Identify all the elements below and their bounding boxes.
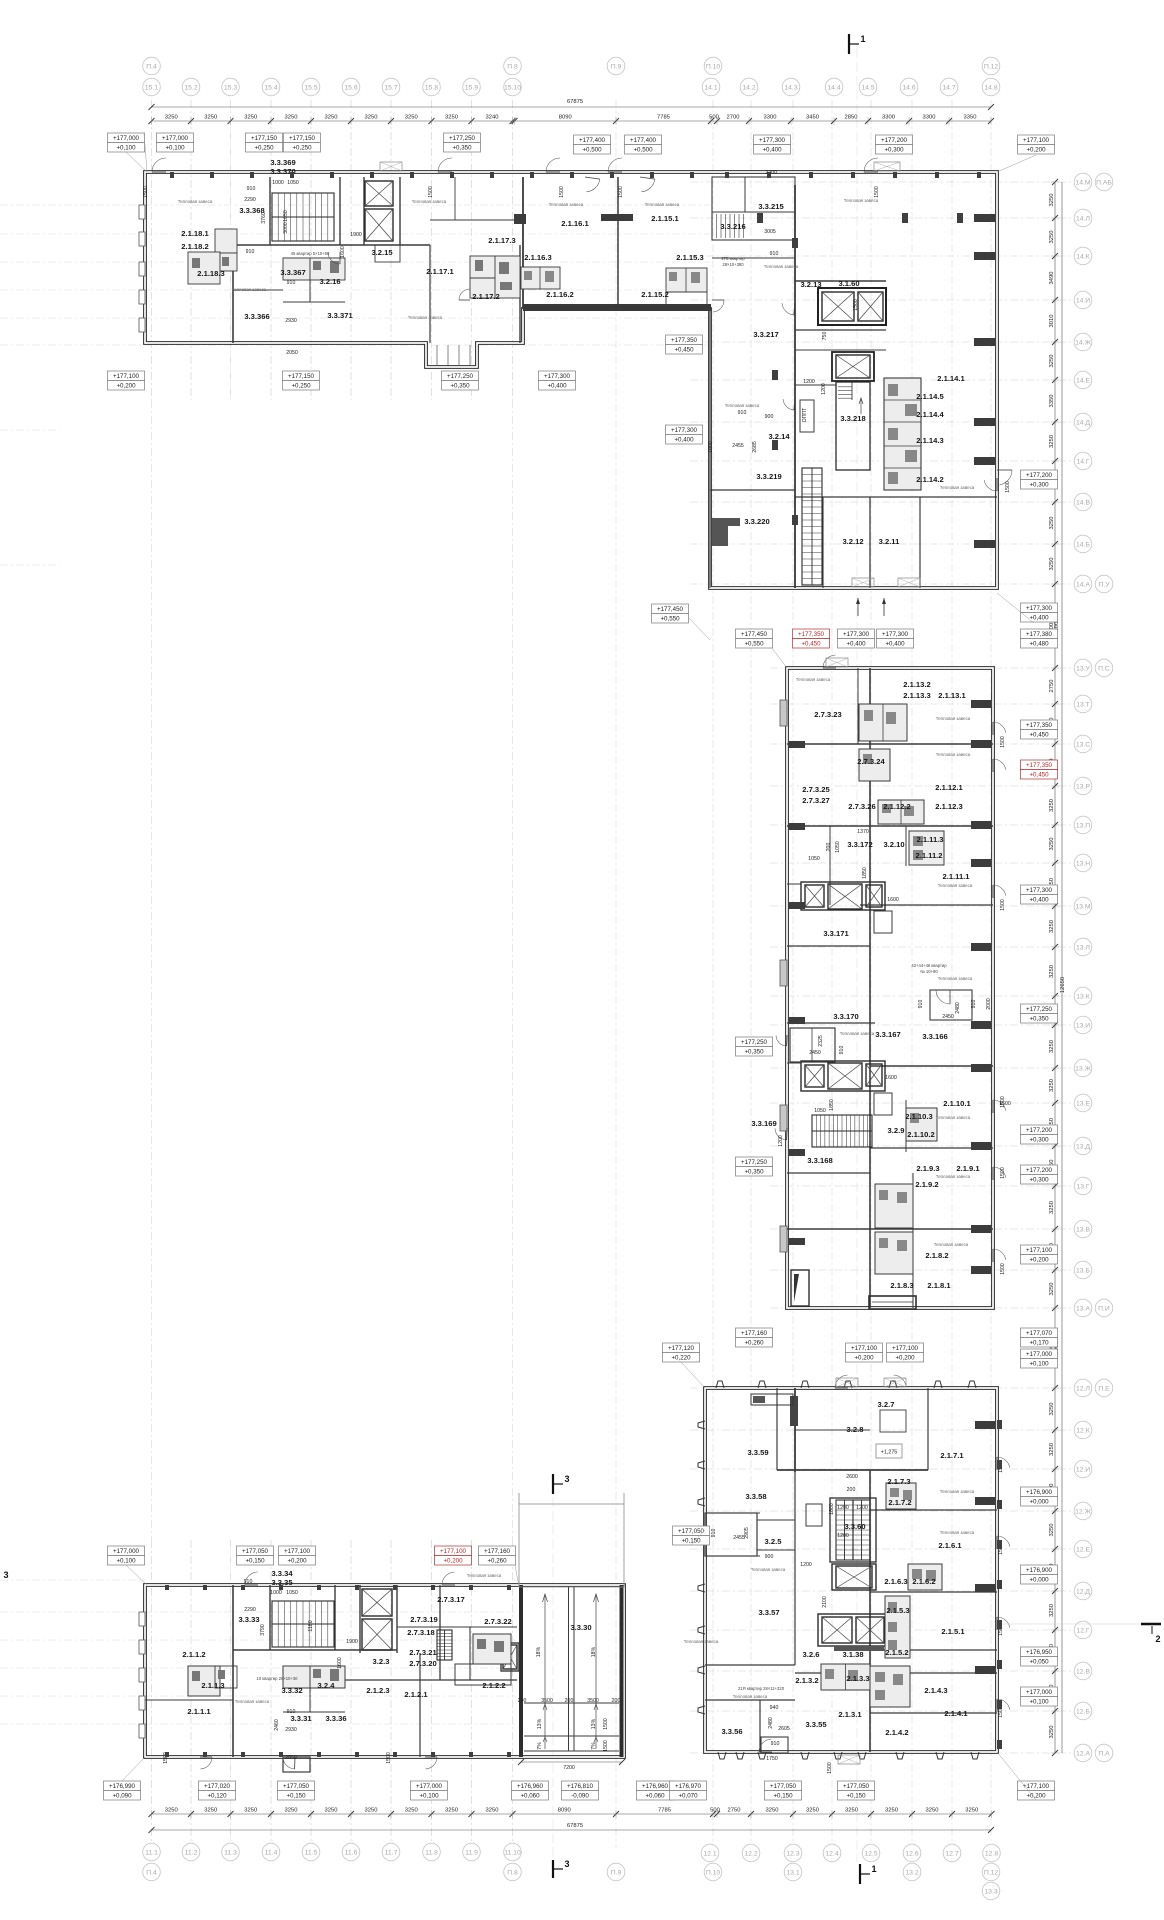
svg-text:+177,350: +177,350 (1026, 722, 1053, 729)
svg-text:13.3: 13.3 (984, 1888, 997, 1895)
svg-text:1500: 1500 (428, 186, 434, 198)
svg-text:3250: 3250 (885, 1808, 898, 1814)
svg-text:Тепловая завеса: Тепловая завеса (733, 1694, 768, 1699)
svg-text:14.6: 14.6 (902, 84, 915, 91)
svg-text:1500: 1500 (618, 186, 624, 198)
svg-text:+176,960: +176,960 (517, 1783, 544, 1790)
svg-text:3250: 3250 (486, 1808, 499, 1814)
svg-text:+0,060: +0,060 (520, 1793, 540, 1800)
svg-text:3250: 3250 (1049, 1283, 1055, 1296)
svg-text:П.10: П.10 (706, 1869, 721, 1876)
svg-text:+177,200: +177,200 (1026, 472, 1053, 479)
svg-text:3010: 3010 (1049, 315, 1055, 328)
svg-text:1600: 1600 (337, 1657, 343, 1669)
svg-text:+0,000: +0,000 (1029, 1577, 1049, 1584)
svg-text:Тепловая завеса: Тепловая завеса (764, 264, 799, 269)
svg-text:3250: 3250 (1049, 231, 1055, 244)
svg-text:13.Е: 13.Е (1076, 1100, 1090, 1107)
svg-text:15.4: 15.4 (264, 84, 277, 91)
svg-text:+0,100: +0,100 (116, 145, 136, 152)
svg-text:3500: 3500 (587, 1698, 599, 1704)
svg-text:1: 1 (860, 34, 865, 44)
svg-text:+0,200: +0,200 (116, 383, 136, 390)
svg-text:15.7: 15.7 (384, 84, 397, 91)
svg-text:2.7.3.19: 2.7.3.19 (410, 1615, 437, 1624)
svg-text:Тепловая завеса: Тепловая завеса (940, 485, 975, 490)
svg-text:2.1.14.3: 2.1.14.3 (916, 436, 943, 445)
svg-text:1500: 1500 (603, 1718, 609, 1730)
svg-text:П.4: П.4 (146, 63, 157, 70)
svg-text:14.3: 14.3 (784, 84, 797, 91)
svg-text:1800: 1800 (708, 441, 714, 453)
svg-text:13.Р: 13.Р (1076, 783, 1090, 790)
svg-text:940: 940 (770, 1705, 779, 1711)
svg-text:Тепловая завеса: Тепловая завеса (938, 883, 973, 888)
svg-text:+177,300: +177,300 (1026, 605, 1053, 612)
svg-text:+177,450: +177,450 (741, 631, 768, 638)
svg-text:+0,150: +0,150 (286, 1793, 306, 1800)
svg-text:11.4: 11.4 (265, 1849, 278, 1856)
svg-text:8090: 8090 (559, 115, 572, 121)
svg-text:Тепловая завеса: Тепловая завеса (684, 1639, 719, 1644)
svg-text:910: 910 (839, 1046, 845, 1055)
svg-text:3250: 3250 (806, 1808, 819, 1814)
svg-text:3250: 3250 (285, 1808, 298, 1814)
svg-text:2.1.8.3: 2.1.8.3 (890, 1281, 913, 1290)
svg-text:11.2: 11.2 (185, 1849, 198, 1856)
svg-text:-0,090: -0,090 (571, 1793, 589, 1800)
svg-text:14.А: 14.А (1076, 581, 1090, 588)
svg-text:2.7.3.27: 2.7.3.27 (802, 796, 829, 805)
svg-text:+0,400: +0,400 (1029, 615, 1049, 622)
svg-text:3.3.33: 3.3.33 (238, 1615, 259, 1624)
svg-text:3.2.4: 3.2.4 (318, 1681, 336, 1690)
svg-text:3250: 3250 (204, 115, 217, 121)
svg-text:3250: 3250 (1049, 1443, 1055, 1456)
svg-text:3005: 3005 (764, 229, 776, 235)
svg-text:+0,250: +0,250 (291, 383, 311, 390)
svg-text:2.1.15.3: 2.1.15.3 (676, 253, 703, 262)
svg-text:12.И: 12.И (1076, 1466, 1090, 1473)
svg-text:910: 910 (247, 186, 256, 192)
svg-text:12.А: 12.А (1076, 1750, 1090, 1757)
svg-text:2.1.9.1: 2.1.9.1 (956, 1164, 980, 1173)
svg-text:Тепловая завеса: Тепловая завеса (936, 716, 971, 721)
svg-text:12.Б: 12.Б (1076, 1708, 1090, 1715)
svg-text:+0,400: +0,400 (846, 641, 866, 648)
svg-text:12.3: 12.3 (786, 1850, 799, 1857)
svg-text:3.3.218: 3.3.218 (840, 414, 865, 423)
svg-text:28×10+380: 28×10+380 (722, 262, 744, 267)
svg-text:3.3.168: 3.3.168 (807, 1156, 832, 1165)
svg-text:3.2.7: 3.2.7 (878, 1400, 895, 1409)
svg-text:+0,200: +0,200 (854, 1355, 874, 1362)
svg-text:+176,950: +176,950 (1026, 1649, 1053, 1656)
svg-text:Тепловая завеса: Тепловая завеса (936, 1115, 971, 1120)
svg-text:13.1: 13.1 (786, 1869, 799, 1876)
svg-text:+0,000: +0,000 (1029, 1499, 1049, 1506)
svg-text:+177,350: +177,350 (671, 337, 698, 344)
svg-text:1050: 1050 (287, 180, 299, 186)
svg-text:11.9: 11.9 (465, 1849, 478, 1856)
svg-text:3.2.3: 3.2.3 (373, 1657, 390, 1666)
svg-text:+0,450: +0,450 (801, 641, 821, 648)
svg-text:1500: 1500 (1000, 1167, 1006, 1179)
svg-text:Тепловая завеса: Тепловая завеса (178, 199, 213, 204)
svg-text:3.3.366: 3.3.366 (244, 312, 269, 321)
svg-text:+177,450: +177,450 (657, 606, 684, 613)
svg-text:14.М: 14.М (1075, 179, 1090, 186)
svg-text:2.1.14.5: 2.1.14.5 (916, 392, 944, 401)
svg-text:Тепловая завеса: Тепловая завеса (235, 1699, 270, 1704)
svg-text:+177,120: +177,120 (668, 1345, 695, 1352)
svg-text:+0,350: +0,350 (744, 1049, 764, 1056)
svg-text:3250: 3250 (204, 1808, 217, 1814)
svg-text:14.Л: 14.Л (1076, 215, 1090, 222)
svg-text:2.1.1.3: 2.1.1.3 (201, 1681, 224, 1690)
svg-text:+176,900: +176,900 (1026, 1489, 1053, 1496)
svg-text:2.1.13.1: 2.1.13.1 (938, 691, 966, 700)
svg-text:П.12: П.12 (984, 63, 999, 70)
svg-text:2450: 2450 (809, 1050, 821, 1056)
svg-text:12.4: 12.4 (825, 1850, 838, 1857)
svg-text:910: 910 (918, 1000, 924, 1009)
svg-text:3240: 3240 (486, 115, 499, 121)
svg-text:2455: 2455 (732, 443, 744, 449)
svg-text:2.1.18.3: 2.1.18.3 (197, 269, 224, 278)
svg-text:+0,150: +0,150 (773, 1793, 793, 1800)
svg-text:3250: 3250 (845, 1808, 858, 1814)
svg-text:13.И: 13.И (1076, 1022, 1090, 1029)
svg-text:П.9: П.9 (611, 1869, 622, 1876)
svg-text:7%: 7% (591, 1742, 597, 1750)
svg-text:2480: 2480 (955, 1002, 961, 1014)
svg-text:+176,810: +176,810 (567, 1783, 594, 1790)
svg-text:1600: 1600 (887, 897, 899, 903)
svg-text:+0,400: +0,400 (762, 147, 782, 154)
svg-text:+176,970: +176,970 (675, 1783, 702, 1790)
svg-text:14.К: 14.К (1076, 253, 1089, 260)
svg-text:3.3.32: 3.3.32 (281, 1686, 302, 1695)
svg-text:3250: 3250 (1049, 517, 1055, 530)
svg-text:12.Г: 12.Г (1076, 1627, 1089, 1634)
svg-text:2050: 2050 (286, 350, 298, 356)
svg-text:+0,400: +0,400 (885, 641, 905, 648)
svg-text:2.1.3.1: 2.1.3.1 (838, 1710, 862, 1719)
svg-text:750: 750 (822, 332, 828, 341)
svg-text:2905: 2905 (744, 1527, 750, 1539)
svg-text:2.1.5.2: 2.1.5.2 (885, 1648, 908, 1657)
svg-text:14.1: 14.1 (704, 84, 717, 91)
svg-text:2.1.14.2: 2.1.14.2 (916, 475, 943, 484)
svg-text:1000: 1000 (272, 180, 284, 186)
svg-text:+0,260: +0,260 (487, 1558, 507, 1565)
svg-text:3250: 3250 (926, 1808, 939, 1814)
svg-text:2.1.11.3: 2.1.11.3 (916, 835, 943, 844)
svg-text:№ 10+90: № 10+90 (920, 969, 938, 974)
svg-text:1800: 1800 (829, 1503, 835, 1515)
svg-text:П.И: П.И (1098, 1305, 1110, 1312)
svg-text:2000: 2000 (986, 998, 992, 1010)
svg-text:13.У: 13.У (1076, 665, 1090, 672)
svg-text:ОППТ: ОППТ (802, 407, 808, 422)
svg-text:13.Д: 13.Д (1076, 1143, 1090, 1150)
svg-text:+0,100: +0,100 (419, 1793, 439, 1800)
svg-text:1750: 1750 (766, 1756, 778, 1762)
svg-text:+177,050: +177,050 (843, 1783, 870, 1790)
svg-text:3250: 3250 (1049, 965, 1055, 978)
svg-text:+177,300: +177,300 (843, 631, 870, 638)
svg-text:1: 1 (871, 1864, 876, 1874)
svg-text:+177,300: +177,300 (882, 631, 909, 638)
svg-text:15.3: 15.3 (224, 84, 237, 91)
svg-text:2.7.3.23: 2.7.3.23 (814, 710, 841, 719)
svg-text:3.3.30: 3.3.30 (570, 1623, 591, 1632)
svg-text:2.7.3.24: 2.7.3.24 (857, 757, 885, 766)
svg-text:+0,060: +0,060 (645, 1793, 665, 1800)
svg-text:12.5: 12.5 (864, 1850, 877, 1857)
svg-text:+0,350: +0,350 (452, 145, 472, 152)
svg-text:2.1.17.3: 2.1.17.3 (488, 236, 515, 245)
svg-text:3250: 3250 (1049, 435, 1055, 448)
svg-text:2.1.7.1: 2.1.7.1 (940, 1451, 964, 1460)
svg-text:+0,300: +0,300 (1029, 1177, 1049, 1184)
svg-text:200: 200 (847, 1487, 856, 1493)
svg-text:3250: 3250 (405, 115, 418, 121)
svg-text:П.4: П.4 (146, 1869, 157, 1876)
svg-text:+0,150: +0,150 (846, 1793, 866, 1800)
svg-text:1850: 1850 (862, 867, 868, 879)
svg-text:1500: 1500 (1000, 899, 1006, 911)
svg-text:Тепловая завеса: Тепловая завеса (549, 202, 584, 207)
svg-text:2.1.15.1: 2.1.15.1 (651, 214, 679, 223)
svg-text:2480: 2480 (768, 1717, 774, 1729)
svg-text:+177,000: +177,000 (1026, 1689, 1053, 1696)
svg-text:3.3.369: 3.3.369 (270, 158, 295, 167)
svg-text:+177,000: +177,000 (113, 1548, 140, 1555)
svg-text:Тепловая завеса: Тепловая завеса (725, 403, 760, 408)
svg-text:+0,200: +0,200 (1029, 1257, 1049, 1264)
svg-text:1370: 1370 (857, 829, 869, 835)
svg-text:+177,100: +177,100 (113, 373, 140, 380)
svg-text:+0,200: +0,200 (287, 1558, 307, 1565)
svg-text:13.Л: 13.Л (1076, 944, 1090, 951)
svg-text:1200: 1200 (856, 1505, 868, 1511)
svg-text:2.1.16.1: 2.1.16.1 (561, 219, 589, 228)
svg-text:15.8: 15.8 (425, 84, 438, 91)
svg-text:+0,450: +0,450 (1029, 772, 1049, 779)
svg-text:2.7.3.18: 2.7.3.18 (407, 1628, 434, 1637)
svg-text:14.2: 14.2 (742, 84, 755, 91)
svg-text:2750: 2750 (728, 1808, 741, 1814)
svg-text:14.Ж: 14.Ж (1075, 339, 1091, 346)
svg-text:3760: 3760 (261, 212, 267, 224)
svg-text:2.1.8.1: 2.1.8.1 (927, 1281, 951, 1290)
svg-text:+0,400: +0,400 (547, 383, 567, 390)
svg-text:+0,250: +0,250 (292, 145, 312, 152)
svg-text:14.В: 14.В (1076, 499, 1090, 506)
svg-text:Тепловая завеса: Тепловая завеса (796, 677, 831, 682)
svg-text:1500: 1500 (853, 299, 859, 311)
svg-text:+177,000: +177,000 (162, 135, 189, 142)
svg-text:2.1.4.2: 2.1.4.2 (885, 1728, 908, 1737)
svg-text:2.1.17.2: 2.1.17.2 (472, 292, 499, 301)
svg-text:15.5: 15.5 (304, 84, 317, 91)
svg-text:14.8: 14.8 (984, 84, 997, 91)
svg-text:14.Е: 14.Е (1076, 377, 1090, 384)
svg-text:14.И: 14.И (1076, 297, 1090, 304)
svg-text:+177,100: +177,100 (851, 1345, 878, 1352)
svg-text:+0,550: +0,550 (744, 641, 764, 648)
svg-text:+0,220: +0,220 (671, 1355, 691, 1362)
svg-text:3490: 3490 (1049, 272, 1055, 285)
svg-text:+177,250: +177,250 (741, 1039, 768, 1046)
svg-text:14.Б: 14.Б (1076, 541, 1090, 548)
svg-text:+177,250: +177,250 (447, 373, 474, 380)
svg-text:1500: 1500 (999, 1101, 1011, 1107)
svg-text:42+44+46 квартир: 42+44+46 квартир (911, 963, 947, 968)
svg-text:7%: 7% (537, 1742, 543, 1750)
svg-text:+177,350: +177,350 (798, 631, 825, 638)
svg-text:3250: 3250 (285, 115, 298, 121)
svg-text:2.1.7.3: 2.1.7.3 (887, 1477, 910, 1486)
svg-text:3250: 3250 (1049, 1726, 1055, 1739)
svg-text:+177,400: +177,400 (579, 137, 606, 144)
svg-text:Тепловая завеса: Тепловая завеса (940, 1530, 975, 1535)
svg-text:2.1.1.2: 2.1.1.2 (182, 1650, 205, 1659)
svg-text:2.1.6.2: 2.1.6.2 (912, 1577, 935, 1586)
svg-text:1500: 1500 (1000, 1263, 1006, 1275)
svg-text:3.3.167: 3.3.167 (875, 1030, 900, 1039)
svg-text:12.В: 12.В (1076, 1668, 1090, 1675)
svg-text:2.1.16.3: 2.1.16.3 (524, 253, 551, 262)
svg-text:1050: 1050 (286, 1590, 298, 1596)
svg-text:П.8: П.8 (507, 63, 518, 70)
svg-text:2050: 2050 (285, 1755, 297, 1761)
svg-text:Тепловая завеса: Тепловая завеса (232, 287, 267, 292)
svg-text:1600: 1600 (885, 1075, 897, 1081)
svg-text:2.1.9.2: 2.1.9.2 (915, 1180, 938, 1189)
svg-text:+0,400: +0,400 (1029, 897, 1049, 904)
svg-text:3.2.9: 3.2.9 (888, 1126, 905, 1135)
svg-text:2.1.5.3: 2.1.5.3 (886, 1606, 909, 1615)
svg-text:3.3.36: 3.3.36 (325, 1714, 346, 1723)
svg-text:2.1.10.2: 2.1.10.2 (907, 1130, 934, 1139)
svg-text:+0,100: +0,100 (116, 1558, 136, 1565)
svg-text:8090: 8090 (558, 1808, 571, 1814)
svg-text:3250: 3250 (325, 115, 338, 121)
svg-text:12.8: 12.8 (985, 1850, 998, 1857)
svg-text:3.3.34: 3.3.34 (271, 1569, 293, 1578)
svg-text:3250: 3250 (325, 1808, 338, 1814)
svg-text:1200: 1200 (800, 1562, 812, 1568)
svg-text:2.1.6.3: 2.1.6.3 (884, 1577, 907, 1586)
svg-text:+177,300: +177,300 (671, 427, 698, 434)
svg-text:Тепловая завеса: Тепловая завеса (844, 198, 879, 203)
svg-text:13.А: 13.А (1076, 1305, 1090, 1312)
svg-text:3.3.56: 3.3.56 (721, 1727, 742, 1736)
svg-text:11.5: 11.5 (305, 1849, 318, 1856)
svg-text:3250: 3250 (365, 1808, 378, 1814)
svg-text:67875: 67875 (567, 1823, 583, 1829)
svg-text:+177,200: +177,200 (881, 137, 908, 144)
svg-text:3250: 3250 (965, 1808, 978, 1814)
svg-text:3250: 3250 (1049, 558, 1055, 571)
svg-text:1500: 1500 (143, 186, 149, 198)
svg-text:+177,020: +177,020 (204, 1783, 231, 1790)
svg-text:3250: 3250 (1049, 355, 1055, 368)
svg-text:+0,300: +0,300 (1029, 482, 1049, 489)
svg-text:+0,480: +0,480 (1029, 641, 1049, 648)
svg-text:+0,070: +0,070 (678, 1793, 698, 1800)
svg-text:Тепловая завеса: Тепловая завеса (840, 1031, 875, 1036)
svg-text:3.2.10: 3.2.10 (883, 840, 904, 849)
svg-text:+0,450: +0,450 (1029, 732, 1049, 739)
svg-text:2.7.3.20: 2.7.3.20 (409, 1659, 436, 1668)
svg-text:2.1.14.4: 2.1.14.4 (916, 410, 944, 419)
svg-text:Тепловая завеса: Тепловая завеса (645, 202, 680, 207)
svg-text:12650: 12650 (1060, 977, 1066, 993)
svg-text:2.1.12.1: 2.1.12.1 (935, 783, 963, 792)
svg-text:+177,350: +177,350 (1026, 762, 1053, 769)
svg-text:2.1.15.2: 2.1.15.2 (641, 290, 668, 299)
svg-text:13.П: 13.П (1076, 822, 1090, 829)
svg-text:+177,050: +177,050 (283, 1783, 310, 1790)
svg-text:Тепловая завеса: Тепловая завеса (936, 752, 971, 757)
svg-text:+0,200: +0,200 (895, 1355, 915, 1362)
svg-text:3790: 3790 (260, 1624, 266, 1636)
svg-text:+177,100: +177,100 (1026, 1247, 1053, 1254)
svg-text:3250: 3250 (165, 115, 178, 121)
svg-text:+177,000: +177,000 (113, 135, 140, 142)
svg-text:15.1: 15.1 (145, 84, 158, 91)
svg-text:3.3.219: 3.3.219 (756, 472, 781, 481)
svg-text:1500: 1500 (603, 1740, 609, 1752)
svg-text:12.Д: 12.Д (1076, 1588, 1090, 1595)
svg-text:2460: 2460 (274, 1719, 280, 1731)
svg-text:11.8: 11.8 (425, 1849, 438, 1856)
svg-text:П.Е: П.Е (1098, 1385, 1110, 1392)
svg-text:3250: 3250 (1049, 799, 1055, 812)
svg-text:1900: 1900 (346, 1639, 358, 1645)
svg-text:3: 3 (564, 1859, 569, 1869)
svg-text:+177,100: +177,100 (892, 1345, 919, 1352)
svg-text:1050: 1050 (835, 841, 841, 853)
svg-text:3: 3 (564, 1474, 569, 1484)
svg-text:2.1.1.1: 2.1.1.1 (187, 1707, 211, 1716)
svg-text:2.1.11.2: 2.1.11.2 (915, 851, 942, 860)
svg-text:2200: 2200 (765, 170, 777, 176)
svg-text:+0,400: +0,400 (674, 437, 694, 444)
svg-text:15.9: 15.9 (465, 84, 478, 91)
svg-text:2.1.5.1: 2.1.5.1 (941, 1627, 965, 1636)
svg-text:3250: 3250 (766, 1808, 779, 1814)
svg-text:3300: 3300 (764, 115, 777, 121)
svg-text:2.1.2.2: 2.1.2.2 (482, 1681, 505, 1690)
svg-text:3300: 3300 (923, 115, 936, 121)
svg-text:3300: 3300 (882, 115, 895, 121)
svg-text:2450: 2450 (942, 1014, 954, 1020)
svg-text:3.2.11: 3.2.11 (879, 537, 900, 546)
svg-text:2605: 2605 (778, 1726, 790, 1732)
svg-text:+177,000: +177,000 (1026, 1351, 1053, 1358)
svg-text:3250: 3250 (1049, 838, 1055, 851)
svg-text:18%: 18% (591, 1646, 597, 1657)
svg-text:1850: 1850 (829, 1099, 835, 1111)
svg-text:1600: 1600 (340, 246, 346, 258)
svg-text:3.3.172: 3.3.172 (847, 840, 872, 849)
svg-text:3250: 3250 (1049, 1604, 1055, 1617)
